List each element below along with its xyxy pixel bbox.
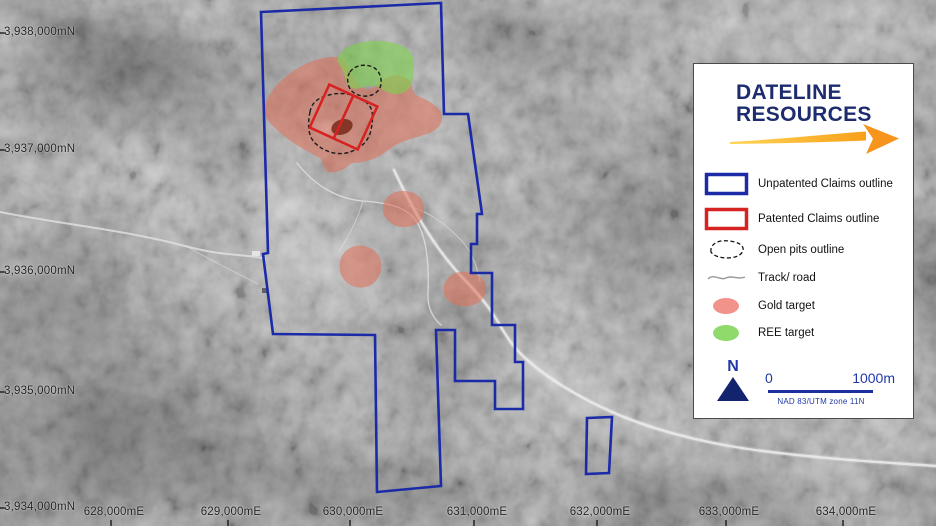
brand-arrow-icon: [724, 116, 902, 158]
track-swatch-icon: [704, 266, 750, 290]
easting-label: 629,000mE: [201, 506, 262, 518]
northing-label: 3,936,000mN: [4, 265, 75, 277]
datum-label: NAD 83/UTM zone 11N: [746, 397, 896, 406]
easting-label: 633,000mE: [699, 506, 760, 518]
north-arrow-icon: [716, 376, 750, 402]
legend-item-patented: Patented Claims outline: [704, 207, 906, 231]
gold-target-3: [340, 246, 382, 288]
legend-label: Unpatented Claims outline: [758, 178, 893, 190]
scale-start-label: 0: [765, 370, 773, 386]
claims-map-figure: 3,938,000mN 3,937,000mN 3,936,000mN 3,93…: [0, 0, 936, 526]
easting-label: 634,000mE: [816, 506, 877, 518]
legend-item-open-pits: Open pits outline: [704, 238, 906, 262]
legend-label: REE target: [758, 327, 814, 339]
northing-label: 3,934,000mN: [4, 501, 75, 513]
legend-item-unpatented: Unpatented Claims outline: [704, 172, 906, 196]
legend-label: Patented Claims outline: [758, 213, 879, 225]
open-pit-swatch-icon: [704, 238, 750, 262]
easting-label: 632,000mE: [570, 506, 631, 518]
legend-item-track: Track/ road: [704, 266, 906, 290]
north-label: N: [716, 358, 750, 376]
legend-item-gold: Gold target: [704, 294, 906, 318]
legend-item-ree: REE target: [704, 321, 906, 345]
unpatented-swatch-icon: [704, 172, 750, 196]
easting-label: 628,000mE: [84, 506, 145, 518]
legend-label: Open pits outline: [758, 244, 844, 256]
easting-label: 631,000mE: [447, 506, 508, 518]
northing-label: 3,935,000mN: [4, 385, 75, 397]
legend-panel: DATELINE RESOURCES Unpatented Claims out…: [693, 63, 914, 419]
patented-swatch-icon: [704, 207, 750, 231]
legend-label: Track/ road: [758, 272, 816, 284]
legend-label: Gold target: [758, 300, 815, 312]
ree-swatch-icon: [704, 321, 750, 345]
brand-line-1: DATELINE: [736, 82, 872, 104]
northing-label: 3,938,000mN: [4, 26, 75, 38]
scale-bar: [768, 390, 873, 393]
northing-label: 3,937,000mN: [4, 143, 75, 155]
easting-label: 630,000mE: [323, 506, 384, 518]
gold-swatch-icon: [704, 294, 750, 318]
scale-end-label: 1000m: [852, 370, 895, 386]
